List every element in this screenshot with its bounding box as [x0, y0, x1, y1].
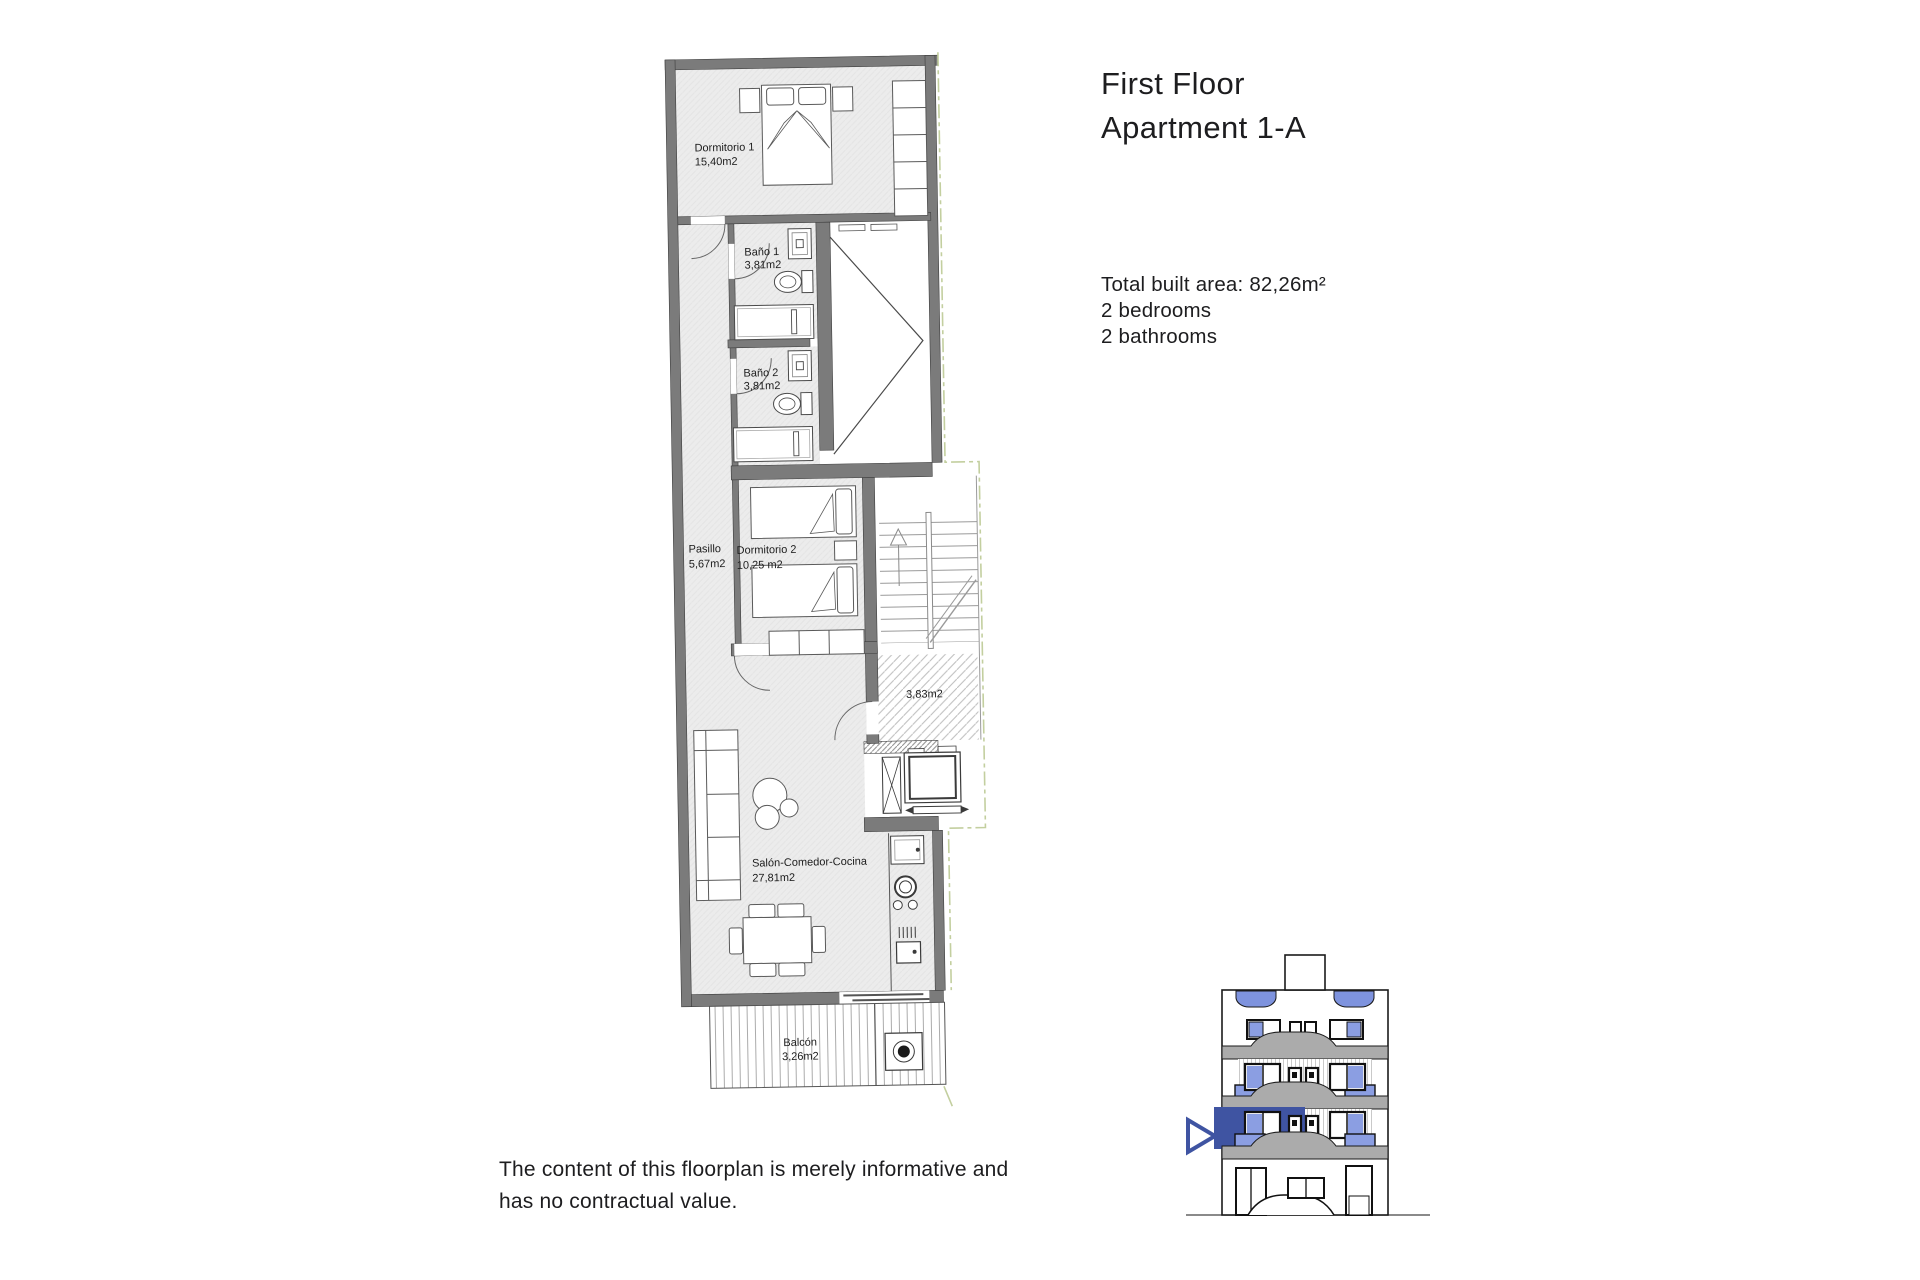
- room-label-pasillo: Pasillo: [688, 543, 721, 556]
- room-area-terraza: 3,83m2: [906, 688, 943, 701]
- floorplan-page: Dormitorio 1 15,40m2 Baño 1 3,81m2 Baño …: [0, 0, 1920, 1280]
- room-area-dormitorio2: 10,25 m2: [737, 559, 783, 572]
- room-area-pasillo: 5,67m2: [689, 558, 726, 571]
- room-area-dormitorio1: 15,40m2: [695, 156, 738, 169]
- room-label-salon: Salón-Comedor-Cocina: [752, 856, 868, 870]
- page-title: First Floor Apartment 1-A: [1101, 62, 1306, 150]
- room-area-bano1: 3,81m2: [744, 259, 781, 272]
- room-area-balcon: 3,26m2: [782, 1050, 819, 1063]
- room-area-bano2: 3,81m2: [744, 380, 781, 393]
- disclaimer-line-1: The content of this floorplan is merely …: [499, 1154, 1008, 1186]
- toilet-tank: [802, 270, 813, 292]
- room-label-balcon: Balcón: [783, 1036, 817, 1049]
- elevation-drawing: [1186, 955, 1430, 1215]
- nightstand: [834, 541, 856, 560]
- room-label-bano1: Baño 1: [744, 246, 779, 259]
- room-area-salon: 27,81m2: [752, 872, 795, 885]
- title-line-2: Apartment 1-A: [1101, 106, 1306, 150]
- shower: [733, 426, 813, 461]
- toilet-tank: [801, 392, 812, 414]
- nightstand: [832, 87, 852, 111]
- bedrooms-count: 2 bedrooms: [1101, 298, 1326, 324]
- toilet: [774, 271, 801, 292]
- coffee-table: [755, 805, 779, 829]
- bathrooms-count: 2 bathrooms: [1101, 324, 1326, 350]
- floor-pointer-icon: [1188, 1120, 1215, 1152]
- shower: [734, 304, 814, 339]
- disclaimer-line-2: has no contractual value.: [499, 1186, 1008, 1218]
- building-elevation: [1178, 938, 1468, 1238]
- dining-table: [743, 917, 812, 964]
- disclaimer: The content of this floorplan is merely …: [499, 1154, 1008, 1218]
- title-line-1: First Floor: [1101, 62, 1306, 106]
- oven: [896, 942, 920, 963]
- sofa: [694, 730, 741, 901]
- coffee-table: [780, 799, 798, 817]
- summary-block: Total built area: 82,26m² 2 bedrooms 2 b…: [1101, 272, 1326, 350]
- nightstand: [740, 88, 760, 112]
- wardrobe: [769, 630, 864, 656]
- balcony: [710, 1002, 946, 1088]
- roof-terrace: [1236, 991, 1276, 1007]
- total-built-area: Total built area: 82,26m²: [1101, 272, 1326, 298]
- toilet: [773, 393, 800, 414]
- wardrobe: [892, 80, 927, 216]
- room-label-dormitorio2: Dormitorio 2: [736, 544, 796, 557]
- room-label-dormitorio1: Dormitorio 1: [694, 141, 754, 154]
- roof-terrace: [1334, 991, 1374, 1007]
- roof-block: [1285, 955, 1325, 990]
- stove: [895, 876, 916, 897]
- floorplan-drawing: Dormitorio 1 15,40m2 Baño 1 3,81m2 Baño …: [640, 45, 1040, 1130]
- room-label-bano2: Baño 2: [743, 367, 778, 380]
